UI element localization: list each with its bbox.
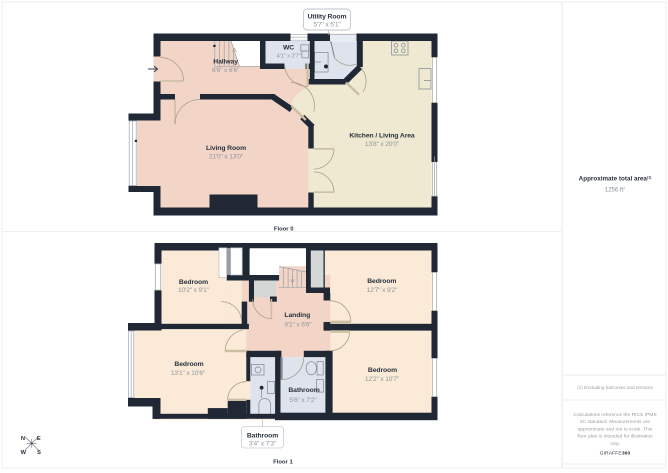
svg-text:Floor 1: Floor 1 bbox=[273, 460, 293, 466]
svg-text:13'8" x 20'0": 13'8" x 20'0" bbox=[365, 141, 400, 148]
svg-text:3C standard. Measurements are: 3C standard. Measurements are bbox=[580, 419, 650, 425]
svg-text:5'7" x 5'1": 5'7" x 5'1" bbox=[313, 22, 341, 29]
svg-text:GIRAFFE360: GIRAFFE360 bbox=[600, 451, 631, 457]
svg-text:Bathroom: Bathroom bbox=[247, 432, 278, 439]
svg-text:1256 ft2: 1256 ft2 bbox=[605, 187, 625, 194]
svg-text:WC: WC bbox=[283, 44, 294, 51]
svg-text:floor plan is intended for ill: floor plan is intended for illustration bbox=[577, 434, 653, 440]
svg-text:9'1" x 6'6": 9'1" x 6'6" bbox=[284, 321, 312, 328]
svg-text:(1) Excluding balconies and te: (1) Excluding balconies and terraces bbox=[577, 385, 653, 390]
svg-text:10'2" x 9'1": 10'2" x 9'1" bbox=[178, 287, 210, 294]
svg-text:Floor 0: Floor 0 bbox=[274, 226, 294, 232]
svg-text:W: W bbox=[21, 450, 27, 456]
svg-text:Bathroom: Bathroom bbox=[288, 387, 319, 394]
svg-text:Bedroom: Bedroom bbox=[367, 278, 396, 285]
svg-text:Landing: Landing bbox=[284, 312, 310, 319]
svg-text:Kitchen / Living Area: Kitchen / Living Area bbox=[349, 132, 415, 139]
svg-text:21'0" x 13'0": 21'0" x 13'0" bbox=[209, 153, 244, 160]
svg-text:Bedroom: Bedroom bbox=[174, 361, 203, 368]
svg-text:E: E bbox=[37, 436, 41, 442]
svg-text:Hallway: Hallway bbox=[213, 59, 238, 66]
svg-text:4'1" x 2'7": 4'1" x 2'7" bbox=[276, 54, 300, 60]
svg-text:S: S bbox=[37, 450, 41, 456]
svg-text:approximate and not to scale.: approximate and not to scale. This bbox=[578, 426, 653, 432]
svg-text:6'6" x 6'6": 6'6" x 6'6" bbox=[212, 67, 240, 74]
svg-text:5'6" x 7'2": 5'6" x 7'2" bbox=[289, 397, 317, 404]
svg-text:Living Room: Living Room bbox=[206, 145, 246, 152]
svg-text:12'7" x 9'2": 12'7" x 9'2" bbox=[367, 287, 399, 294]
svg-text:12'2" x 10'7": 12'2" x 10'7" bbox=[365, 376, 400, 383]
svg-text:13'1" x 10'6": 13'1" x 10'6" bbox=[171, 370, 206, 377]
svg-text:N: N bbox=[21, 436, 25, 442]
svg-text:only.: only. bbox=[610, 441, 620, 447]
svg-text:Bedroom: Bedroom bbox=[179, 279, 208, 286]
svg-text:3'4" x 7'3": 3'4" x 7'3" bbox=[249, 441, 277, 448]
svg-text:Approximate total area(1): Approximate total area(1) bbox=[579, 175, 652, 182]
svg-text:Calculations reference the RIC: Calculations reference the RICS IPMS bbox=[573, 412, 657, 418]
svg-text:Utility Room: Utility Room bbox=[308, 13, 347, 20]
svg-text:Bedroom: Bedroom bbox=[368, 367, 397, 374]
